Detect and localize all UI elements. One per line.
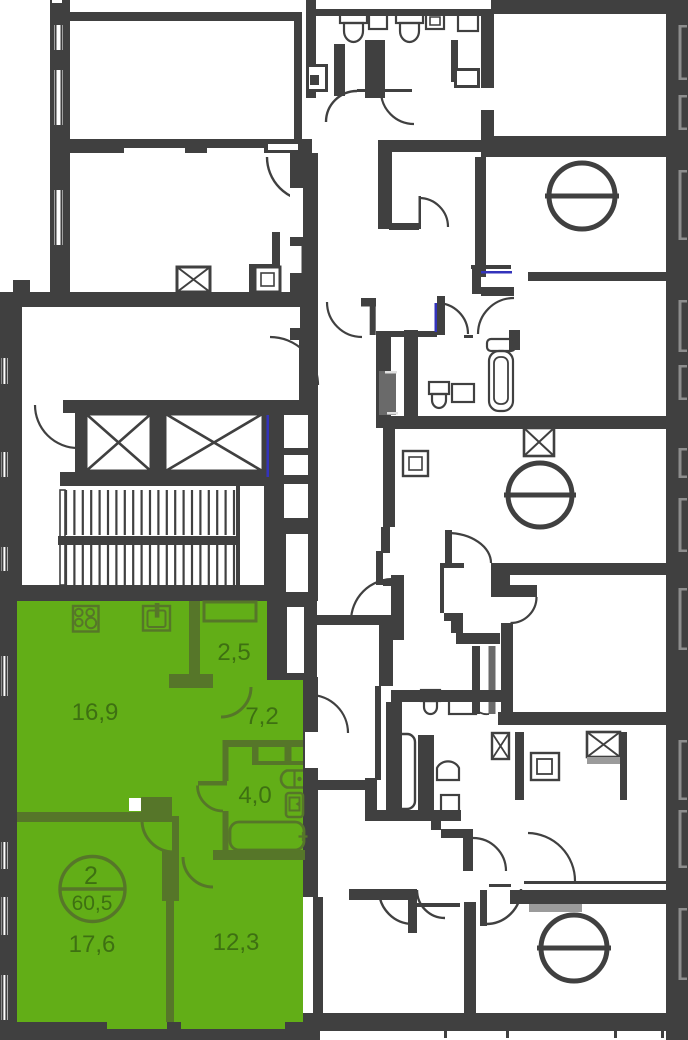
svg-text:17,6: 17,6 <box>69 931 116 958</box>
svg-text:7,2: 7,2 <box>245 703 278 730</box>
svg-text:2: 2 <box>84 862 98 890</box>
svg-text:12,3: 12,3 <box>213 929 260 956</box>
svg-text:16,9: 16,9 <box>72 699 119 726</box>
svg-text:60,5: 60,5 <box>72 892 113 915</box>
svg-text:2,5: 2,5 <box>217 639 250 666</box>
svg-text:4,0: 4,0 <box>238 782 271 809</box>
